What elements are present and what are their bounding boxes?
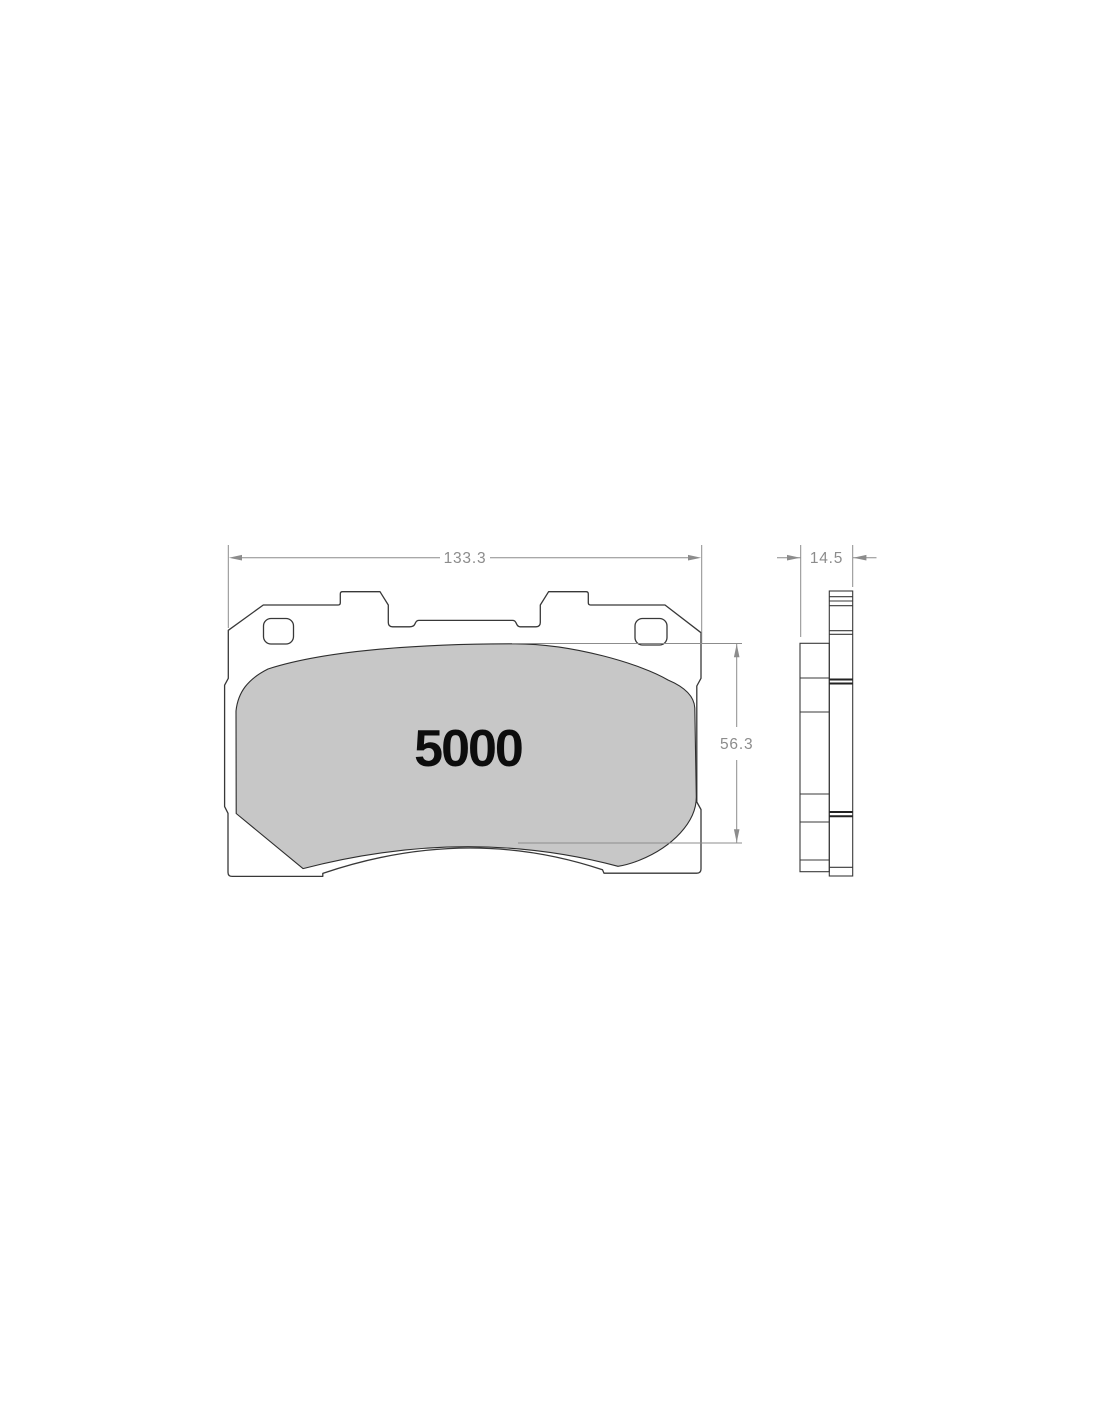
drawing-sheet: 5000 <box>0 0 1100 1422</box>
side-view <box>800 591 853 876</box>
technical-drawing-canvas: 5000 <box>0 0 1100 1422</box>
arrowhead-up <box>734 644 740 657</box>
abutment-hole-left <box>264 619 294 645</box>
front-view: 5000 <box>225 592 701 877</box>
abutment-hole-right <box>635 619 667 646</box>
arrowhead-left <box>229 555 242 561</box>
dimension-thickness-value: 14.5 <box>810 550 843 567</box>
dimension-height-value: 56.3 <box>720 736 753 753</box>
arrowhead-right <box>688 555 701 561</box>
arrowhead-left <box>787 555 800 561</box>
arrowhead-right <box>853 555 866 561</box>
dimension-width-value: 133.3 <box>444 550 487 567</box>
arrowhead-down <box>734 829 740 842</box>
part-number-label: 5000 <box>414 720 522 778</box>
thickness-dimension: 14.5 <box>777 545 877 637</box>
